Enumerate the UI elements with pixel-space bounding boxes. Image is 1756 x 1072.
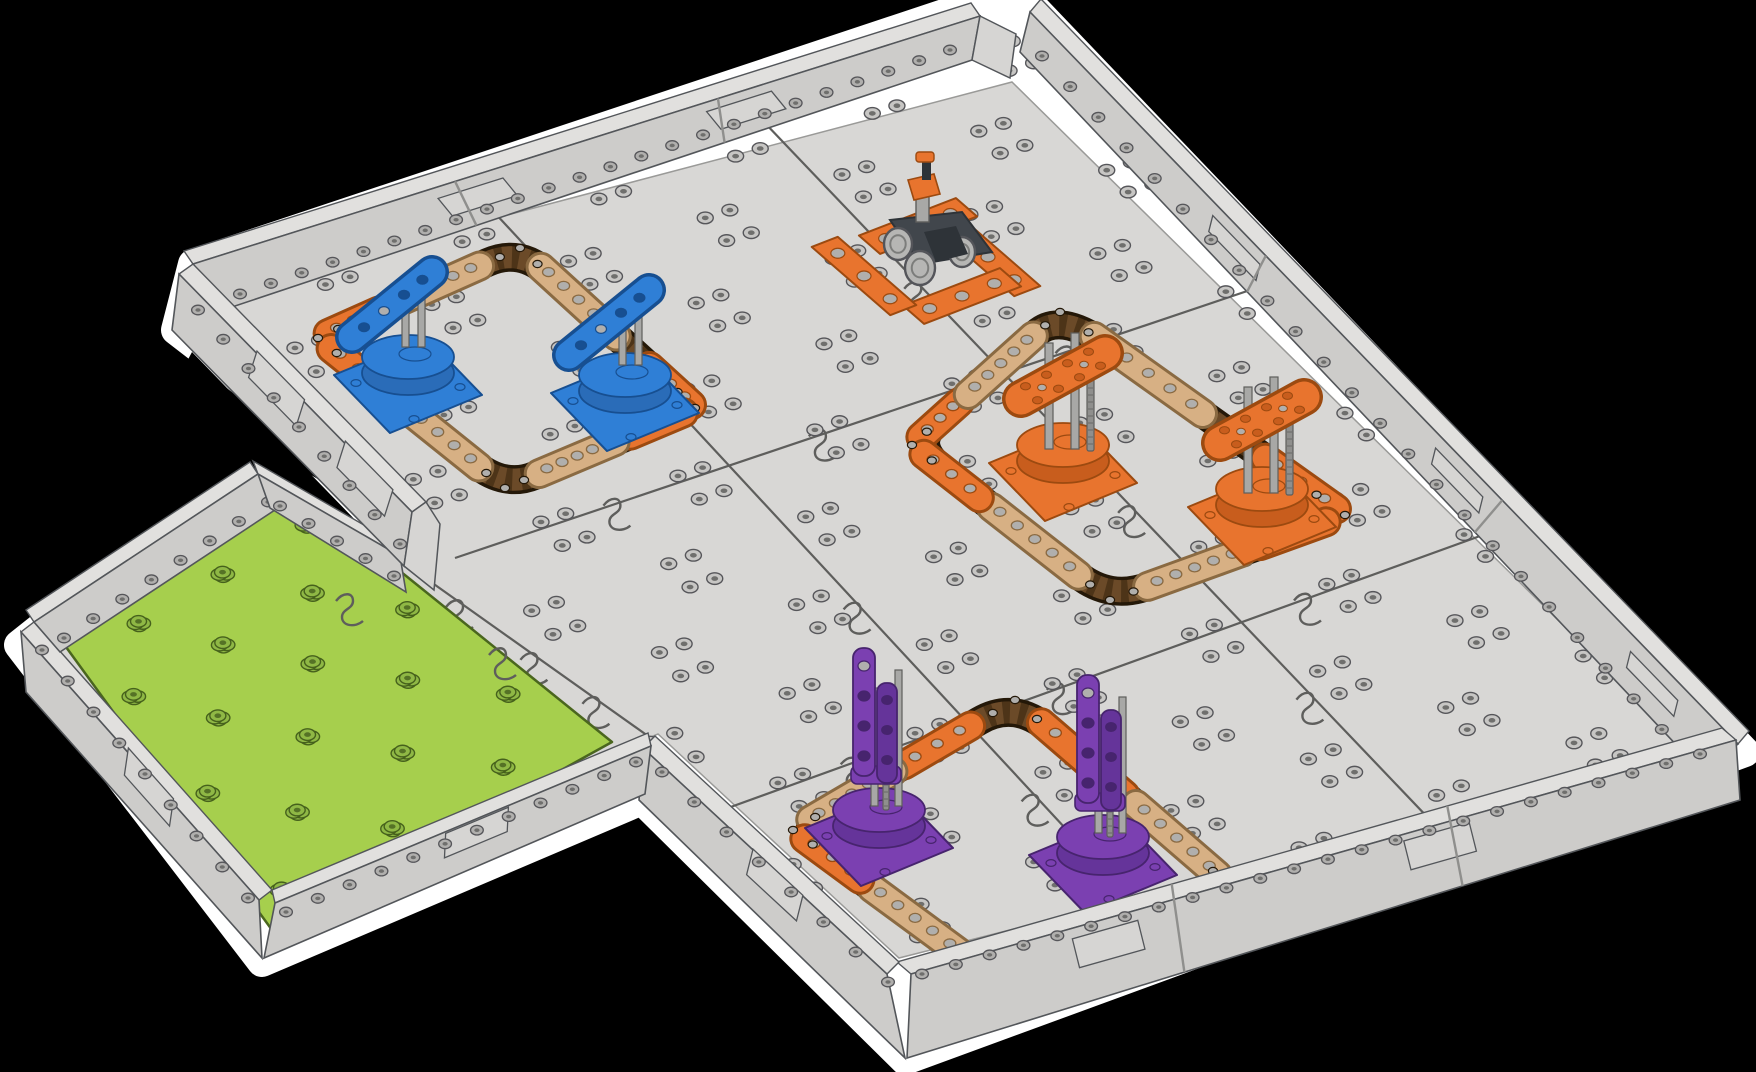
plate-pin — [923, 303, 937, 313]
wall-rivet-hole — [1393, 838, 1398, 842]
floor-dot-hole — [839, 172, 846, 177]
purple-beam-hole — [1106, 723, 1117, 732]
floor-dot-hole — [1103, 168, 1110, 173]
floor-dot-hole — [1370, 595, 1377, 600]
floor-dot-hole — [399, 749, 406, 754]
floor-dot-hole — [723, 238, 730, 243]
beam-hole — [543, 268, 555, 277]
floor-dot-hole — [586, 282, 593, 287]
floor-dot-hole — [867, 356, 874, 361]
floor-dot-hole — [1040, 770, 1047, 775]
flag-hole — [399, 290, 410, 299]
platform-stud — [1033, 397, 1043, 404]
platform-pin — [1279, 405, 1288, 412]
platform-stud — [1283, 392, 1293, 399]
platform-stud — [1042, 371, 1052, 378]
chain-pin — [907, 441, 916, 448]
floor-dot-hole — [721, 488, 728, 493]
robot-wheel — [905, 251, 935, 285]
floor-dot-hole — [848, 529, 855, 534]
beam-hole — [1021, 335, 1033, 344]
beam-hole — [586, 445, 598, 454]
chain-pin — [1340, 511, 1349, 518]
wall-rivet-hole — [731, 122, 736, 126]
platform-stud — [1054, 385, 1064, 392]
floor-dot-hole — [590, 251, 597, 256]
floor-dot-hole — [1357, 487, 1364, 492]
floor-dot-hole — [611, 274, 618, 279]
wall-rivet-hole — [670, 144, 675, 148]
floor-dot-hole — [435, 469, 442, 474]
wall-rivet-hole — [633, 760, 638, 764]
wall-rivet-hole — [453, 218, 458, 222]
floor-dot-hole — [456, 493, 463, 498]
floor-dot-hole — [948, 382, 955, 387]
beam-hole — [931, 739, 943, 748]
floor-dot-hole — [812, 428, 819, 433]
wall-rivet-hole — [91, 617, 96, 621]
beam-hole — [432, 428, 444, 437]
purple-beam-hole — [1106, 783, 1117, 792]
beam-hole — [1154, 819, 1166, 828]
chain-pin — [927, 457, 936, 464]
platform-pin — [1038, 384, 1047, 391]
wall-rivet-hole — [515, 197, 520, 201]
floor-dot-hole — [927, 811, 934, 816]
floor-dot-hole — [799, 772, 806, 777]
wall-rivet-hole — [1089, 924, 1094, 928]
wall-rivet-hole — [1096, 115, 1101, 119]
floor-dot-hole — [465, 405, 472, 410]
floor-dot-hole — [130, 692, 137, 697]
floor-dot-hole — [732, 154, 739, 159]
floor-dot-hole — [1094, 251, 1101, 256]
platform-stud — [1084, 348, 1094, 355]
beam-hole — [909, 752, 921, 761]
floor-dot-hole — [858, 442, 865, 447]
robot-arm-joint — [922, 160, 931, 180]
wall-rivet-hole — [538, 801, 543, 805]
disk-top — [1017, 423, 1109, 467]
floor-dot-hole — [1049, 681, 1056, 686]
floor-dot-hole — [1198, 742, 1205, 747]
floor-dot-hole — [1101, 412, 1108, 417]
wall-rivet-hole — [474, 828, 479, 832]
chain-pin — [808, 841, 817, 848]
robot-arm-tip — [916, 152, 934, 162]
floor-dot-hole — [702, 665, 709, 670]
platform-stud — [1241, 415, 1251, 422]
beam-hole — [1046, 548, 1058, 557]
chain-pin — [811, 813, 820, 820]
floor-dot-hole — [997, 151, 1004, 156]
flag-hole — [379, 307, 390, 316]
wall-rivet-hole — [1562, 790, 1567, 794]
wall-rivet-hole — [1630, 771, 1635, 775]
wall-rivet-hole — [1265, 299, 1270, 303]
platform-pin — [1237, 428, 1246, 435]
wall-rivet-hole — [220, 865, 225, 869]
wall-rivet-hole — [91, 710, 96, 714]
wall-rivet-hole — [885, 980, 890, 984]
wall-rivet-hole — [392, 239, 397, 243]
floor-dot-hole — [313, 369, 320, 374]
floor-dot-hole — [1195, 545, 1202, 550]
wall-rivet-hole — [762, 112, 767, 116]
wall-rivet-hole — [1494, 810, 1499, 814]
wall-rivet-hole — [1180, 207, 1185, 211]
wall-rivet-hole — [1124, 146, 1129, 150]
wall-rivet-hole — [268, 282, 273, 286]
wall-rivet-hole — [299, 271, 304, 275]
chain-pin — [1129, 588, 1138, 595]
wall-rivet-hole — [1258, 877, 1263, 881]
floor-dot-hole — [1235, 396, 1242, 401]
wall-rivet-hole — [1208, 238, 1213, 242]
chain-pin — [1055, 308, 1064, 315]
floor-dot-hole — [665, 561, 672, 566]
floor-dot-hole — [1080, 616, 1087, 621]
floor-dot-hole — [204, 789, 211, 794]
wall-rivet-hole — [245, 896, 250, 900]
floor-dot-hole — [975, 129, 982, 134]
wall-rivet-hole — [347, 484, 352, 488]
beam-hole — [1189, 563, 1201, 572]
wall-rivet-hole — [1349, 391, 1354, 395]
floor-dot-hole — [1213, 374, 1220, 379]
beam-hole — [1049, 728, 1061, 737]
wall-rivet-hole — [1547, 605, 1552, 609]
wall-rivet-hole — [363, 557, 368, 561]
wall-rivet-hole — [1631, 697, 1636, 701]
floor-dot-hole — [757, 146, 764, 151]
chain-pin — [1086, 581, 1095, 588]
floor-dot-hole — [809, 682, 816, 687]
floor-dot-hole — [1232, 645, 1239, 650]
floor-dot-hole — [1104, 607, 1111, 612]
floor-dot-hole — [967, 656, 974, 661]
beam-hole — [994, 507, 1006, 516]
wall-rivet-hole — [1596, 781, 1601, 785]
floor-dot-hole — [1339, 660, 1346, 665]
floor-dot-hole — [860, 195, 867, 200]
floor-dot-hole — [995, 396, 1002, 401]
floor-dot-hole — [1074, 672, 1081, 677]
floor-dot-hole — [1058, 593, 1065, 598]
wall-rivet-hole — [1462, 513, 1467, 517]
platform-stud — [1232, 441, 1242, 448]
floor-dot-hole — [830, 706, 837, 711]
purple-beam-hole — [1082, 748, 1094, 758]
floor-dot-hole — [347, 275, 354, 280]
floor-dot-hole — [1113, 520, 1120, 525]
wall-rivet-hole — [692, 800, 697, 804]
wall-rivet-hole — [207, 539, 212, 543]
wall-rivet-hole — [947, 48, 952, 52]
wall-rivet-hole — [639, 154, 644, 158]
purple-beam-hole — [1082, 778, 1094, 788]
floor-dot-hole — [1204, 459, 1211, 464]
wall-rivet-hole — [168, 803, 173, 807]
floor-dot-hole — [504, 690, 511, 695]
platform-stud — [1274, 418, 1284, 425]
floor-dot-hole — [702, 216, 709, 221]
chain-pin — [1312, 491, 1321, 498]
chain-pin — [788, 826, 797, 833]
floor-dot-hole — [1244, 311, 1251, 316]
beam-hole — [1164, 384, 1176, 393]
floor-dot-hole — [135, 619, 142, 624]
floor-dot-hole — [1260, 387, 1267, 392]
floor-dot-hole — [1476, 609, 1483, 614]
wall-rivet-hole — [546, 186, 551, 190]
floor-dot-hole — [1211, 623, 1218, 628]
wall-rivet-hole — [296, 425, 301, 429]
wall-rivet-hole — [221, 337, 226, 341]
floor-dot-hole — [821, 342, 828, 347]
floor-dot-hole — [1342, 411, 1349, 416]
wall-rivet-hole — [1427, 829, 1432, 833]
purple-beam-hole — [882, 696, 893, 705]
floor-dot-hole — [869, 111, 876, 116]
wall-rivet-hole — [1039, 54, 1044, 58]
floor-dot-hole — [793, 602, 800, 607]
floor-dot-hole — [739, 316, 746, 321]
platform-pin — [1080, 361, 1089, 368]
wall-rivet-hole — [361, 250, 366, 254]
wall-rivet-hole — [117, 741, 122, 745]
floor-dot-hole — [410, 477, 417, 482]
beam-hole — [954, 726, 966, 735]
floor-dot-hole — [1119, 243, 1126, 248]
purple-beam-hole — [882, 726, 893, 735]
beam-hole — [556, 458, 568, 467]
floor-dot-hole — [1601, 676, 1608, 681]
platform-stud — [1295, 406, 1305, 413]
floor-dot-hole — [1498, 631, 1505, 636]
wall-rivet-hole — [1190, 896, 1195, 900]
wall-rivet-hole — [987, 953, 992, 957]
platform-stud — [1253, 429, 1263, 436]
chain-pin — [482, 469, 491, 476]
floor-dot-hole — [1595, 731, 1602, 736]
beam-hole — [1171, 833, 1183, 842]
wall-rivet-hole — [1697, 752, 1702, 756]
floor-dot-hole — [1345, 604, 1352, 609]
beam-hole — [571, 451, 583, 460]
wall-rivet-hole — [283, 910, 288, 914]
wall-rivet-hole — [1664, 762, 1669, 766]
vex-field-scene — [0, 0, 1756, 1072]
floor-dot-hole — [550, 632, 557, 637]
wall-rivet-hole — [700, 133, 705, 137]
beam-hole — [969, 382, 981, 391]
floor-dot-hole — [726, 208, 733, 213]
wall-rivet-hole — [306, 522, 311, 526]
floor-dot-hole — [483, 232, 490, 237]
wall-rivet-hole — [1152, 177, 1157, 181]
beam-hole — [926, 926, 938, 935]
purple-beam-hole — [1106, 753, 1117, 762]
floor-dot-hole — [952, 577, 959, 582]
purple-beam-hole — [858, 721, 870, 731]
floor-dot-hole — [714, 324, 721, 329]
floor-dot-hole — [1360, 682, 1367, 687]
floor-dot-hole — [784, 691, 791, 696]
wall-rivet-hole — [271, 396, 276, 400]
chain-pin — [495, 253, 504, 260]
flag-hole — [417, 275, 428, 284]
floor-dot-hole — [1442, 705, 1449, 710]
floor-dot-hole — [499, 763, 506, 768]
floor-dot-hole — [690, 553, 697, 558]
floor-dot-hole — [942, 665, 949, 670]
beam-hole — [982, 370, 994, 379]
platform-stud — [1262, 404, 1272, 411]
wall-rivet-hole — [602, 774, 607, 778]
floor-dot-hole — [431, 501, 438, 506]
floor-dot-hole — [948, 835, 955, 840]
floor-dot-hole — [976, 569, 983, 574]
wall-rivet-hole — [347, 883, 352, 887]
flag-hole — [616, 308, 627, 317]
floor-dot-hole — [1314, 669, 1321, 674]
wall-rivet-hole — [277, 504, 282, 508]
wall-rivet-hole — [65, 679, 70, 683]
floor-dot-hole — [842, 364, 849, 369]
floor-dot-hole — [845, 333, 852, 338]
floor-dot-hole — [309, 589, 316, 594]
beam-hole — [558, 281, 570, 290]
floor-dot-hole — [1305, 757, 1312, 762]
floor-dot-hole — [565, 259, 572, 264]
floor-dot-hole — [219, 570, 226, 575]
floor-dot-hole — [584, 535, 591, 540]
beam-hole — [1170, 570, 1182, 579]
chain-pin — [1041, 322, 1050, 329]
wall-rivet-hole — [821, 920, 826, 924]
floor-dot-hole — [814, 625, 821, 630]
platform-stud — [1063, 360, 1073, 367]
floor-dot-hole — [1021, 143, 1028, 148]
plate-pin — [831, 248, 845, 258]
floor-dot-hole — [219, 640, 226, 645]
floor-dot-hole — [1452, 618, 1459, 623]
chain-pin — [1084, 329, 1093, 336]
floor-dot-hole — [1330, 747, 1337, 752]
floor-dot-hole — [833, 450, 840, 455]
wall-rivet-hole — [853, 950, 858, 954]
wall-rivet-hole — [322, 454, 327, 458]
wall-rivet-hole — [917, 59, 922, 63]
wall-rivet-hole — [1490, 544, 1495, 548]
disk-top — [1057, 815, 1149, 859]
purple-beam-hole — [858, 691, 870, 701]
wall-rivet-hole — [1461, 819, 1466, 823]
floor-dot-hole — [824, 537, 831, 542]
floor-dot-hole — [708, 379, 715, 384]
floor-dot-hole — [404, 676, 411, 681]
floor-dot-hole — [1214, 822, 1221, 827]
wall-rivet-hole — [315, 897, 320, 901]
floor-dot-hole — [474, 318, 481, 323]
disk-top — [1216, 467, 1308, 511]
wall-rivet-hole — [1291, 867, 1296, 871]
wall-rivet-hole — [372, 513, 377, 517]
wall-rivet-hole — [1359, 848, 1364, 852]
floor-dot-hole — [562, 511, 569, 516]
floor-dot-hole — [863, 164, 870, 169]
floor-dot-hole — [1571, 741, 1578, 746]
floor-dot-hole — [693, 755, 700, 760]
floor-dot-hole — [677, 674, 684, 679]
floor-dot-hole — [553, 600, 560, 605]
floor-dot-hole — [1348, 573, 1355, 578]
wall-rivet-hole — [659, 770, 664, 774]
floor-dot-hole — [1222, 289, 1229, 294]
purple-beam-hole — [858, 751, 870, 761]
platform-stud — [1021, 383, 1031, 390]
floor-dot-hole — [1379, 509, 1386, 514]
wall-rivet-hole — [379, 869, 384, 873]
flag-hole — [359, 323, 370, 332]
floor-dot-hole — [440, 413, 447, 418]
floor-dot-hole — [1013, 226, 1020, 231]
floor-dot-hole — [571, 424, 578, 429]
purple-beam-hole — [882, 756, 893, 765]
floor-dot-hole — [675, 474, 682, 479]
wall-rivet-hole — [919, 972, 924, 976]
floor-dot-hole — [1070, 704, 1077, 709]
wall-rivet-hole — [570, 787, 575, 791]
platform-stud — [1096, 362, 1106, 369]
beam-hole — [465, 263, 477, 272]
wall-rivet-hole — [397, 542, 402, 546]
floor-dot-hole — [705, 410, 712, 415]
floor-dot-hole — [805, 714, 812, 719]
robot-wheel — [884, 228, 912, 260]
beam-hole — [1008, 347, 1020, 356]
floor-dot-hole — [1323, 582, 1330, 587]
disk-top — [833, 788, 925, 832]
floor-dot-hole — [827, 506, 834, 511]
beam-hole — [448, 441, 460, 450]
floor-dot-hole — [1202, 710, 1209, 715]
floor-dot-hole — [1336, 691, 1343, 696]
floor-dot-hole — [802, 514, 809, 519]
floor-dot-hole — [912, 731, 919, 736]
chain-pin — [988, 709, 997, 716]
wall-rivet-hole — [178, 558, 183, 562]
beam-hole — [909, 913, 921, 922]
wall-rivet-hole — [855, 80, 860, 84]
floor-dot-hole — [681, 642, 688, 647]
floor-dot-hole — [991, 204, 998, 209]
wall-rivet-hole — [423, 229, 428, 233]
chain-pin — [515, 244, 524, 251]
beam-hole — [964, 484, 976, 493]
floor-dot-hole — [717, 293, 724, 298]
floor-dot-hole — [459, 239, 466, 244]
floor-dot-hole — [1000, 121, 1007, 126]
floor-dot-hole — [450, 326, 457, 331]
beam-hole — [892, 901, 904, 910]
wall-rivet-hole — [1293, 330, 1298, 334]
floor-dot-hole — [389, 824, 396, 829]
wall-rivet-hole — [1518, 575, 1523, 579]
wall-rivet-hole — [506, 815, 511, 819]
floor-dot-hole — [304, 732, 311, 737]
